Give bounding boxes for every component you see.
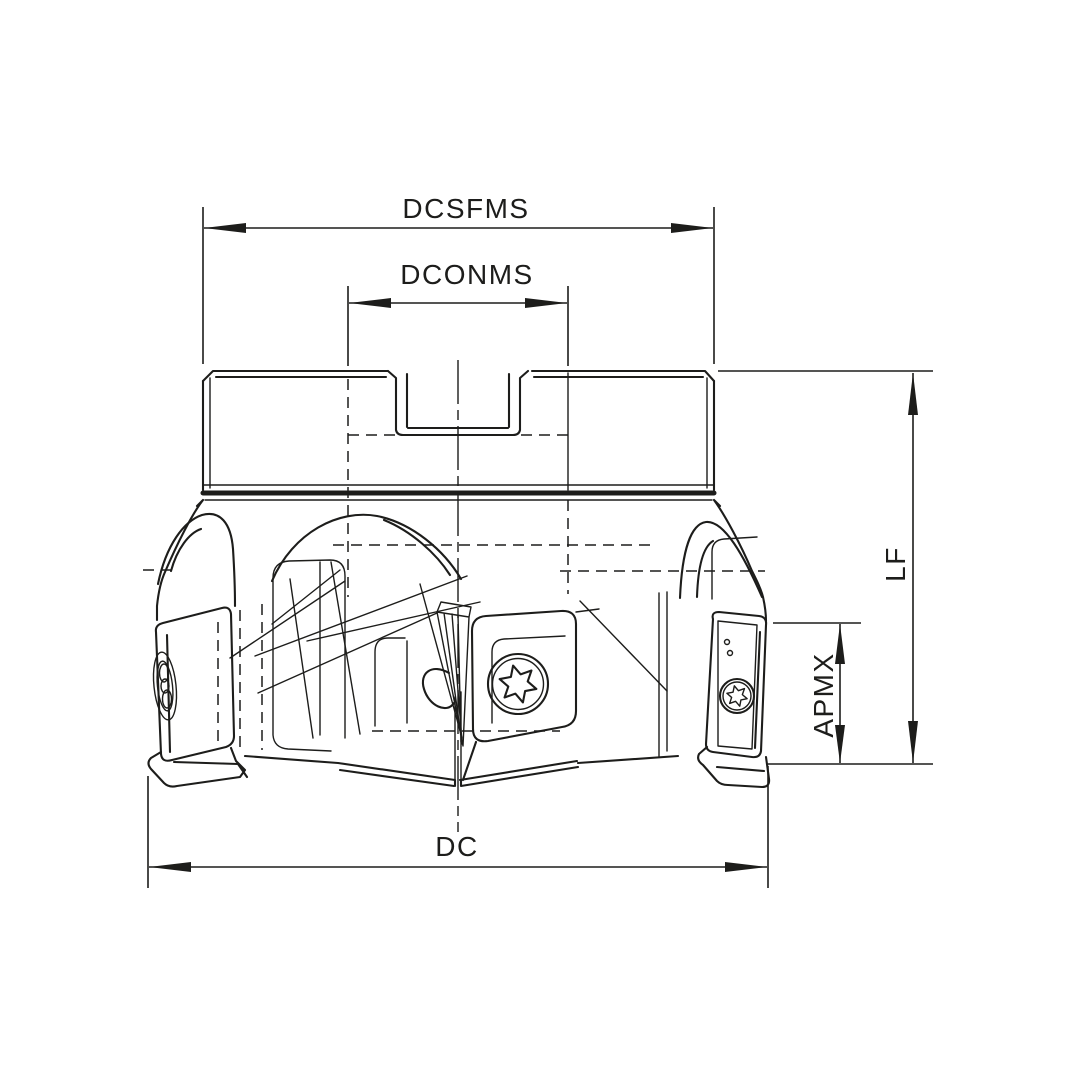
inserts	[149, 602, 770, 787]
technical-drawing-canvas: DCSFMS DCONMS LF APMX DC	[0, 0, 1080, 1080]
arrowhead-right	[725, 862, 767, 872]
right-screw-outer	[720, 679, 754, 713]
dim-label-dconms: DCONMS	[400, 259, 533, 290]
right-screw-torx	[725, 684, 750, 707]
central-dome	[272, 515, 461, 581]
cutter-body	[157, 371, 766, 786]
arrowhead-left	[204, 223, 246, 233]
arrowhead-up	[908, 373, 918, 415]
center-screw-outer	[488, 654, 548, 714]
dim-label-lf: LF	[880, 546, 911, 582]
dim-label-dcsfms: DCSFMS	[402, 193, 529, 224]
right-insert-dot-1	[725, 640, 730, 645]
dim-label-apmx: APMX	[808, 652, 839, 737]
hidden-pocket-verticals	[218, 604, 262, 750]
dimension-dconms: DCONMS	[348, 259, 568, 366]
arrowhead-left	[149, 862, 191, 872]
left-insert	[156, 608, 234, 761]
arrowhead-right	[671, 223, 713, 233]
right-screw-ring	[723, 682, 751, 710]
head-sides	[157, 500, 766, 621]
center-screw-torx	[495, 663, 540, 705]
triangle-insert	[437, 602, 471, 746]
right-insert-foot	[698, 747, 769, 787]
arrowhead-down	[908, 721, 918, 763]
right-pocket-ear	[680, 522, 762, 598]
dconms-extension-lines	[348, 286, 568, 366]
right-insert-dot-2	[728, 651, 733, 656]
center-screw-ring	[493, 659, 544, 710]
dimension-apmx: APMX	[773, 623, 861, 763]
dim-label-dc: DC	[435, 831, 478, 862]
arrowhead-left	[349, 298, 391, 308]
arrowhead-right	[525, 298, 567, 308]
face-mill-drawing: DCSFMS DCONMS LF APMX DC	[0, 0, 1080, 1080]
